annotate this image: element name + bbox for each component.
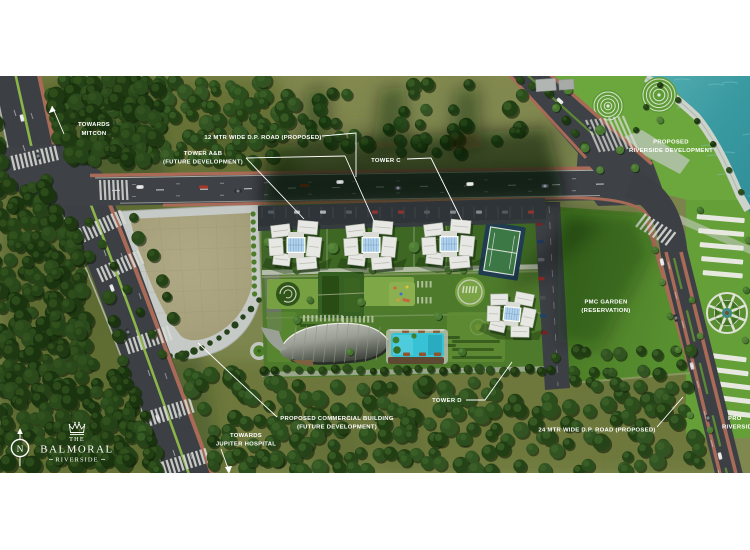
svg-text:(FUTURE DEVELOPMENT): (FUTURE DEVELOPMENT) — [297, 425, 377, 431]
svg-text:TOWER A&B: TOWER A&B — [184, 151, 223, 157]
svg-text:JUPITER HOSPITAL: JUPITER HOSPITAL — [216, 442, 276, 448]
svg-text:(RESERVATION): (RESERVATION) — [581, 308, 630, 314]
svg-text:PMC GARDEN: PMC GARDEN — [584, 300, 627, 306]
svg-text:12 MTR WIDE D.P. ROAD (PROPOSE: 12 MTR WIDE D.P. ROAD (PROPOSED) — [204, 135, 321, 141]
svg-text:N: N — [17, 445, 24, 455]
svg-text:TOWARDS: TOWARDS — [230, 433, 262, 439]
svg-text:MITCON: MITCON — [82, 131, 107, 137]
svg-text:PROPOSED COMMERCIAL BUILDING: PROPOSED COMMERCIAL BUILDING — [280, 416, 394, 422]
svg-text:RIVERSIDE DEVELOPMENT: RIVERSIDE DEVELOPMENT — [629, 148, 713, 154]
svg-text:RIVERSIDE DE: RIVERSIDE DE — [722, 425, 750, 431]
svg-text:RIVERSIDE: RIVERSIDE — [55, 457, 98, 464]
svg-text:TOWARDS: TOWARDS — [78, 122, 110, 128]
svg-text:24 MTR WIDE D.P. ROAD (PROPOSE: 24 MTR WIDE D.P. ROAD (PROPOSED) — [538, 428, 655, 434]
svg-text:BALMORAL: BALMORAL — [40, 444, 113, 456]
svg-text:PROPOSED: PROPOSED — [653, 140, 689, 146]
svg-text:TOWER C: TOWER C — [371, 158, 401, 164]
svg-text:TOWER D: TOWER D — [432, 398, 462, 404]
svg-text:PRO: PRO — [728, 416, 742, 422]
svg-text:(FUTURE DEVELOPMENT): (FUTURE DEVELOPMENT) — [163, 160, 243, 166]
svg-text:THE: THE — [69, 436, 85, 443]
